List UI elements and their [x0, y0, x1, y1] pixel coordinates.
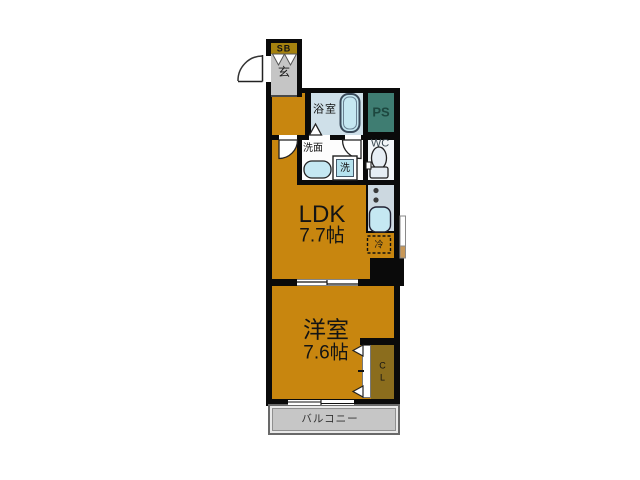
toilet-bowl: [372, 147, 387, 169]
side-window: [400, 216, 406, 246]
shoe-box-label: SB: [277, 45, 292, 54]
closet-arrow-bottom: [353, 386, 363, 397]
washing-machine-label: 洗: [340, 164, 350, 174]
stove-burner-bottom: [373, 197, 378, 202]
washroom-label: 洗面: [303, 144, 323, 154]
entry-door-arc: [238, 56, 263, 81]
ldk-label: LDK: [299, 203, 346, 227]
stove-burner-top: [373, 188, 378, 193]
balcony-label: バルコニー: [301, 414, 358, 425]
toilet-tank: [370, 167, 388, 178]
refrigerator-label: 冷: [374, 240, 383, 249]
floor-plan-canvas: SB 玄 浴室 PS 洗面 洗 WC 冷 LDK 7.7帖 洋室 7.6帖 C …: [0, 0, 640, 480]
bathroom-label: 浴室: [313, 105, 337, 116]
western-room-area-label: 7.6帖: [303, 344, 348, 363]
closet-label-line1: C: [379, 360, 386, 372]
washbasin-sink: [304, 161, 331, 178]
closet-label: C L: [379, 360, 386, 383]
kitchen-sink: [370, 207, 391, 232]
bath-door-triangle: [310, 124, 322, 135]
ldk-area-label: 7.7帖: [299, 227, 344, 246]
closet-arrow-top: [353, 345, 363, 356]
shoe-box-door-triangle-left: [273, 54, 285, 65]
ldk-door-arc: [279, 140, 298, 159]
closet-label-line2: L: [379, 372, 386, 384]
side-window-sill: [400, 246, 406, 258]
toilet-label: WC: [371, 139, 389, 150]
shoe-box-door-triangle-right: [285, 54, 297, 65]
western-room-label: 洋室: [303, 319, 349, 342]
toilet-handle: [366, 162, 371, 169]
genkan-label: 玄: [278, 66, 290, 78]
pipe-space-label: PS: [372, 106, 389, 119]
